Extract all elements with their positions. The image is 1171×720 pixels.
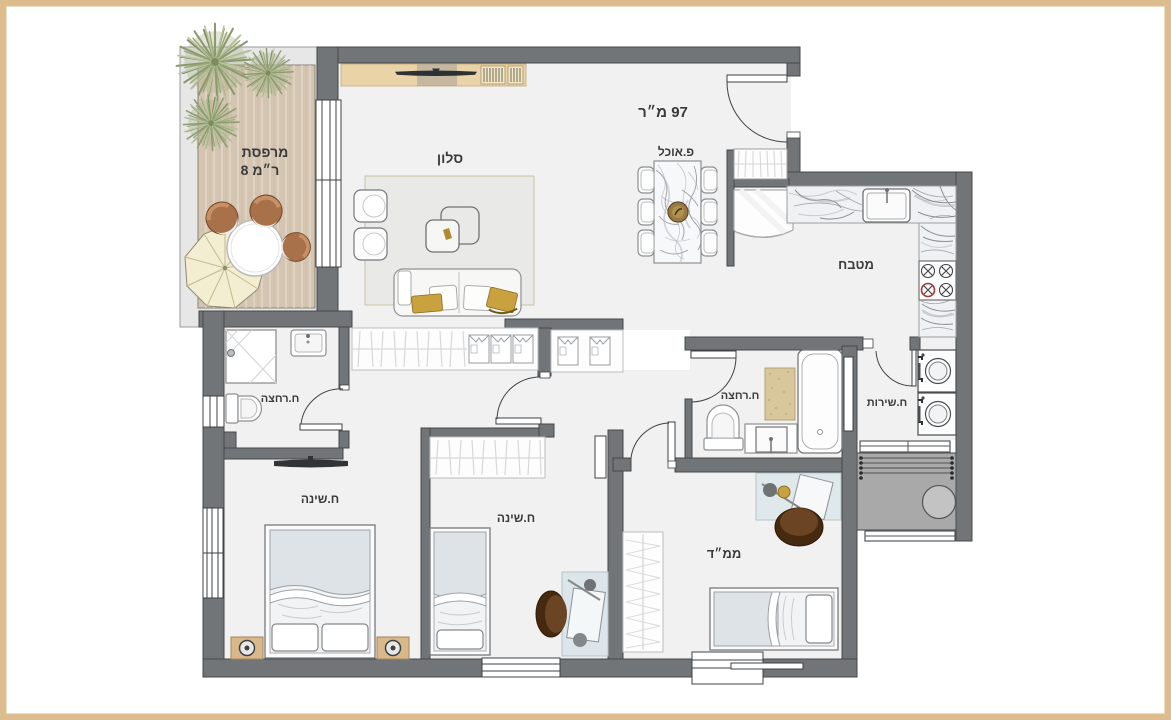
svg-text:ח.רחצה: ח.רחצה bbox=[261, 393, 300, 405]
svg-text:ח.שינה: ח.שינה bbox=[301, 492, 339, 506]
svg-text:סלון: סלון bbox=[437, 150, 463, 166]
svg-text:ח.שירות: ח.שירות bbox=[867, 397, 908, 409]
svg-text:ח.שינה: ח.שינה bbox=[497, 511, 535, 525]
svg-text:מטבח: מטבח bbox=[838, 257, 874, 272]
svg-text:97 מ״ר: 97 מ״ר bbox=[638, 104, 688, 121]
svg-text:8 מ״ר: 8 מ״ר bbox=[241, 162, 280, 178]
svg-text:ח.רחצה: ח.רחצה bbox=[721, 390, 760, 402]
svg-text:ממ״ד: ממ״ד bbox=[707, 546, 742, 561]
svg-text:מרפסת: מרפסת bbox=[242, 144, 289, 160]
svg-text:פ.אוכל: פ.אוכל bbox=[658, 145, 694, 159]
